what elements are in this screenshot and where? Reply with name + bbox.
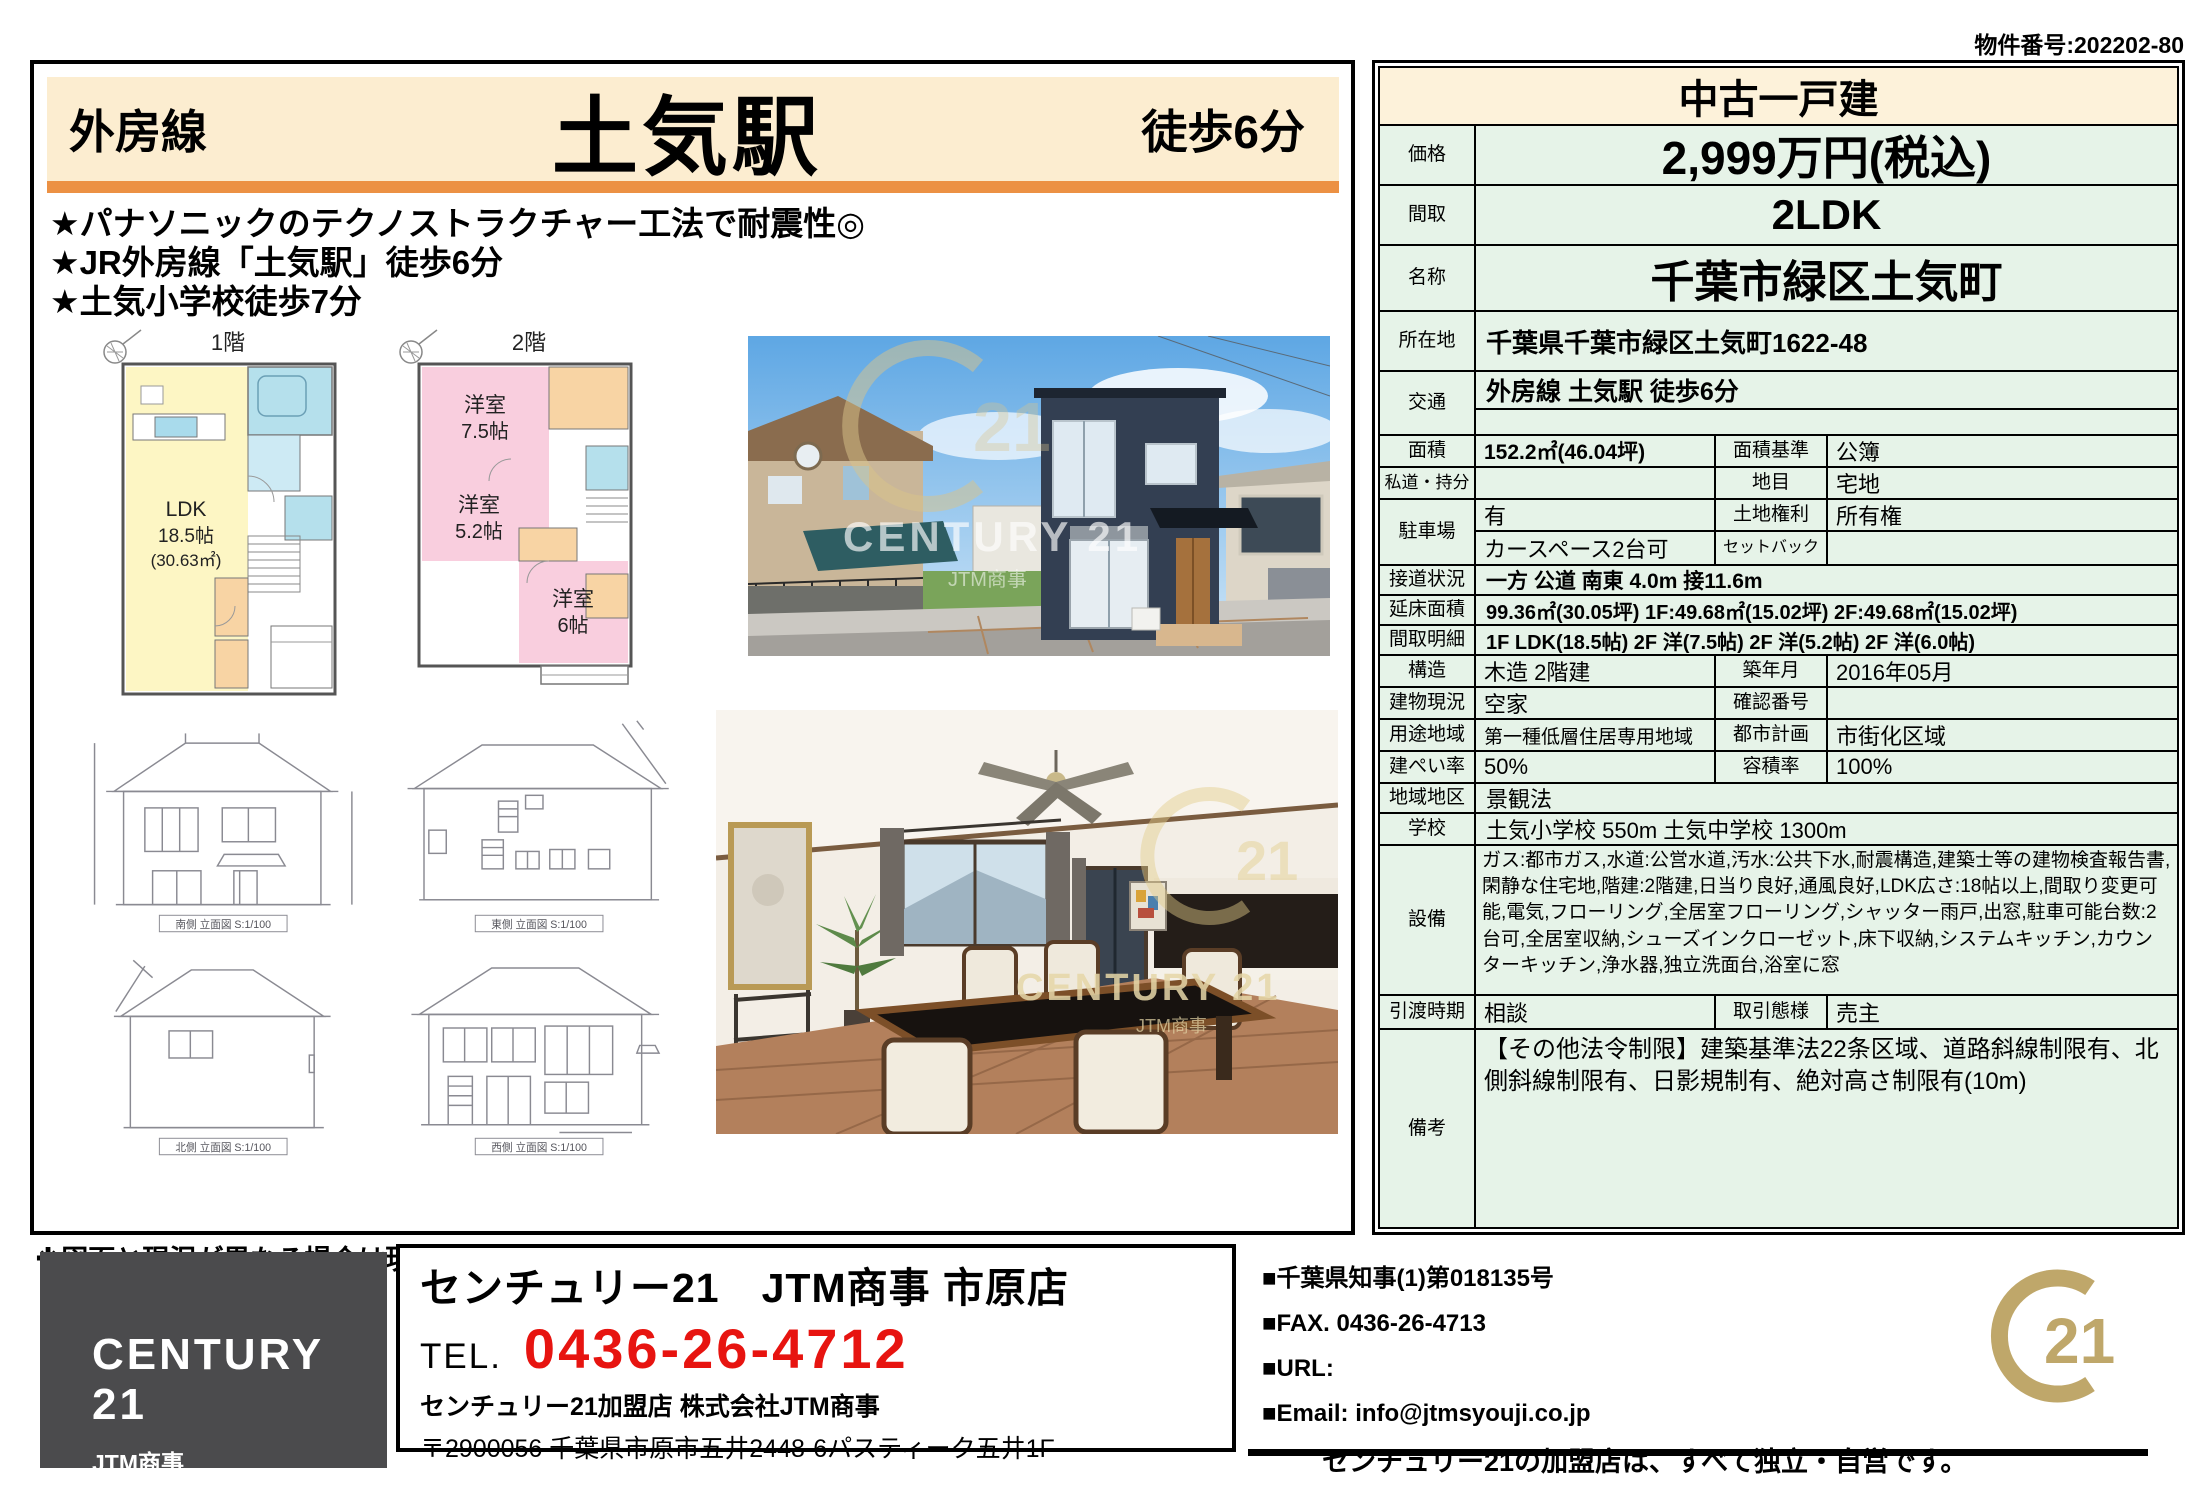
spec-row-road: 接道状況 一方 公道 南東 4.0m 接11.6m [1380,564,2177,594]
madori-value: 2LDK [1476,186,2177,244]
header-strip: 外房線 土気駅 徒歩6分 [47,77,1339,181]
svg-text:21: 21 [973,388,1051,466]
century21-logo-box: CENTURY 21 JTM商事 [40,1252,387,1468]
spec-row-location: 所在地 千葉県千葉市緑区土気町1622-48 [1380,310,2177,370]
tel-label: TEL. [420,1337,502,1377]
svg-text:21: 21 [1236,829,1298,892]
svg-text:18.5帖: 18.5帖 [158,525,214,547]
elevation-south: 南側 立面図 S:1/100 [66,716,379,939]
property-number: 物件番号:202202-80 [1974,26,2184,60]
spec-row-structure: 構造 木造 2階建 築年月 2016年05月 [1380,654,2177,686]
price-value: 2,999万円(税込) [1476,126,2177,184]
spec-row-coverage: 建ぺい率 50% 容積率 100% [1380,750,2177,782]
svg-text:南側 立面図 S:1/100: 南側 立面図 S:1/100 [175,918,271,931]
tel-number: 0436-26-4712 [524,1316,909,1381]
highlight-list: ★パナソニックのテクノストラクチャー工法で耐震性◎ ★JR外房線「土気駅」徒歩6… [50,204,865,321]
spec-row-handover: 引渡時期 相談 取引態様 売主 [1380,994,2177,1028]
svg-text:CENTURY 21: CENTURY 21 [843,513,1142,560]
spec-row-price: 価格 2,999万円(税込) [1380,124,2177,184]
svg-text:6帖: 6帖 [557,614,588,637]
office-name: センチュリー21 JTM商事 市原店 [420,1254,1232,1314]
svg-text:(30.63㎡): (30.63㎡) [151,551,222,570]
station-name: 土気駅 [552,67,822,192]
elevation-north: 北側 立面図 S:1/100 [66,939,379,1162]
svg-text:西側 立面図 S:1/100: 西側 立面図 S:1/100 [491,1140,587,1153]
svg-text:洋室: 洋室 [464,394,506,417]
svg-text:LDK: LDK [166,498,207,521]
exterior-photo: 21 CENTURY 21 JTM商事 [748,336,1330,656]
spec-row-school: 学校 土気小学校 550m 土気中学校 1300m [1380,812,2177,844]
office-address: 〒2900056 千葉県市原市五井2448-6パスティーク五井1F [420,1429,1232,1465]
spec-row-building-status: 建物現況 空家 確認番号 [1380,686,2177,718]
location-value: 千葉県千葉市緑区土気町1622-48 [1476,312,2177,370]
svg-text:5.2帖: 5.2帖 [455,520,503,543]
spec-row-madori: 間取 2LDK [1380,184,2177,244]
svg-text:2階: 2階 [512,330,546,355]
svg-text:洋室: 洋室 [552,588,594,611]
spec-row-equipment: 設備 ガス:都市ガス,水道:公営水道,汚水:公共下水,耐震構造,建築士等の建物検… [1380,844,2177,994]
compass-icon [104,330,141,363]
interior-photo: 21 CENTURY 21 JTM商事 [716,710,1338,1134]
name-value: 千葉市緑区土気町 [1476,246,2177,310]
spec-row-access: 交通 外房線 土気駅 徒歩6分 [1380,370,2177,434]
elevation-east: 東側 立面図 S:1/100 [379,716,692,939]
spec-row-private-road: 私道・持分 地目 宅地 [1380,466,2177,498]
spec-row-parking: 駐車場 有 土地権利 所有権 カースペース2台可 セットバック [1380,498,2177,564]
svg-text:7.5帖: 7.5帖 [461,420,509,443]
svg-text:洋室: 洋室 [458,494,500,517]
rail-line-name: 外房線 [47,96,552,162]
century21-logo-sub: JTM商事 [92,1444,387,1478]
elevation-group: 南側 立面図 S:1/100 東側 立面図 S:1/100 [66,716,691,1161]
member-company: センチュリー21加盟店 株式会社JTM商事 [420,1387,1232,1423]
svg-text:JTM商事: JTM商事 [1136,1016,1207,1036]
highlight-item: ★パナソニックのテクノストラクチャー工法で耐震性◎ [50,204,865,243]
access-value: 外房線 土気駅 徒歩6分 [1476,372,2177,408]
real-estate-flyer: { "meta": { "property_number": "物件番号:202… [0,0,2200,1512]
floorplan-2f: 2階 洋室 7.5帖 洋室 5.2帖 洋室 6帖 [385,326,663,711]
elevation-west: 西側 立面図 S:1/100 [379,939,692,1162]
spec-row-zoning: 用途地域 第一種低層住居専用地域 都市計画 市街化区域 [1380,718,2177,750]
svg-text:東側 立面図 S:1/100: 東側 立面図 S:1/100 [491,918,587,931]
highlight-item: ★JR外房線「土気駅」徒歩6分 [50,243,865,282]
spec-row-area: 面積 152.2㎡(46.04坪) 面積基準 公簿 [1380,434,2177,466]
contact-box: センチュリー21 JTM商事 市原店 TEL. 0436-26-4712 センチ… [396,1244,1236,1452]
license-info: ■千葉県知事(1)第018135号 ■FAX. 0436-26-4713 ■UR… [1248,1256,2148,1456]
spec-title: 中古一戸建 [1380,68,2177,124]
independent-note: センチュリー21の加盟店は、すべて独立・自営です。 [1248,1440,2148,1479]
main-panel: 外房線 土気駅 徒歩6分 ★パナソニックのテクノストラクチャー工法で耐震性◎ ★… [30,60,1355,1235]
highlight-item: ★土気小学校徒歩7分 [50,282,865,321]
svg-text:21: 21 [2044,1305,2115,1377]
svg-text:1階: 1階 [211,330,245,355]
century21-seal-icon: 21 [1982,1260,2134,1412]
floorplan-group: 1階 LDK 18.5帖 (30.63㎡) [89,326,664,711]
compass-icon [400,330,437,363]
walk-time: 徒歩6分 [822,96,1339,162]
accent-bar [47,181,1339,193]
spec-row-remarks: 備考 【その他法令制限】建築基準法22条区域、道路斜線制限有、北側斜線制限有、日… [1380,1028,2177,1227]
floorplan-1f: 1階 LDK 18.5帖 (30.63㎡) [89,326,367,711]
century21-logo-text: CENTURY 21 [92,1330,387,1430]
spec-table: 中古一戸建 価格 2,999万円(税込) 間取 2LDK 名称 千葉市緑区土気町… [1372,60,2185,1235]
spec-row-layout-detail: 間取明細 1F LDK(18.5帖) 2F 洋(7.5帖) 2F 洋(5.2帖)… [1380,624,2177,654]
svg-text:JTM商事: JTM商事 [948,568,1027,591]
svg-text:CENTURY 21: CENTURY 21 [1016,967,1280,1009]
spec-row-floor-area: 延床面積 99.36㎡(30.05坪) 1F:49.68㎡(15.02坪) 2F… [1380,594,2177,624]
spec-row-district: 地域地区 景観法 [1380,782,2177,812]
svg-text:北側 立面図 S:1/100: 北側 立面図 S:1/100 [175,1140,271,1153]
spec-row-name: 名称 千葉市緑区土気町 [1380,244,2177,310]
